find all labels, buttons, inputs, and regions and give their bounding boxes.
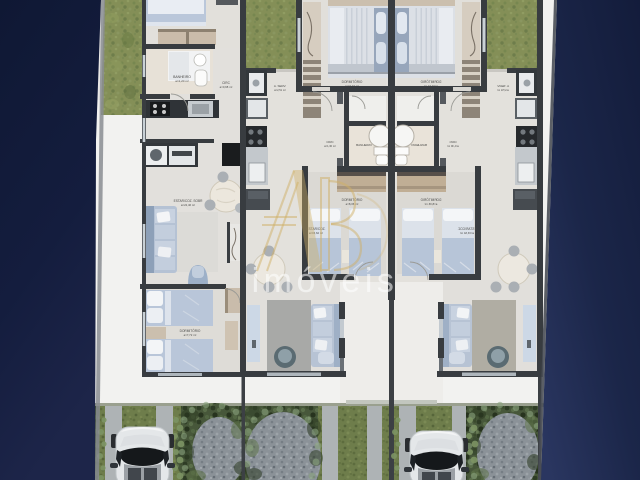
svg-text:a=8,36 m²: a=8,36 m² (346, 202, 359, 206)
svg-text:a=1,30 m²: a=1,30 m² (324, 144, 336, 148)
svg-text:A. SERV.: A. SERV. (274, 84, 287, 88)
svg-text:a=22,46 m²: a=22,46 m² (181, 203, 195, 207)
svg-text:a=2,20 m²: a=2,20 m² (175, 79, 189, 83)
svg-text:a=0,98 m²: a=0,98 m² (220, 85, 233, 89)
svg-text:BANHEIRO: BANHEIRO (356, 143, 372, 147)
svg-text:imóveis: imóveis (252, 262, 399, 300)
svg-text:a=2,51 m²: a=2,51 m² (274, 88, 286, 92)
svg-text:CIRC: CIRC (326, 140, 334, 144)
svg-text:a=7,72 m²: a=7,72 m² (184, 333, 197, 337)
